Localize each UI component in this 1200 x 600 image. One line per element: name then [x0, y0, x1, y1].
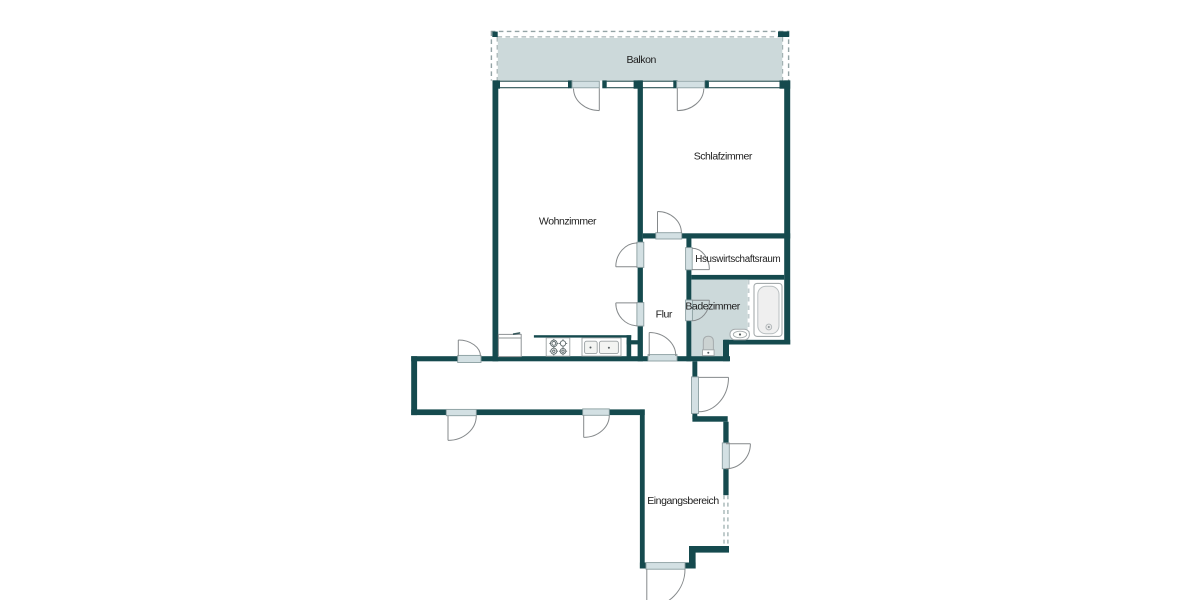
svg-text:Hsuswirtschaftsraum: Hsuswirtschaftsraum — [695, 254, 780, 265]
svg-text:Wohnzimmer: Wohnzimmer — [539, 216, 597, 228]
svg-text:Schlafzimmer: Schlafzimmer — [694, 151, 753, 163]
svg-text:Badezimmer: Badezimmer — [685, 301, 740, 313]
svg-text:Eingangsbereich: Eingangsbereich — [647, 495, 719, 507]
svg-text:Flur: Flur — [656, 309, 673, 321]
svg-text:Balkon: Balkon — [626, 54, 656, 66]
